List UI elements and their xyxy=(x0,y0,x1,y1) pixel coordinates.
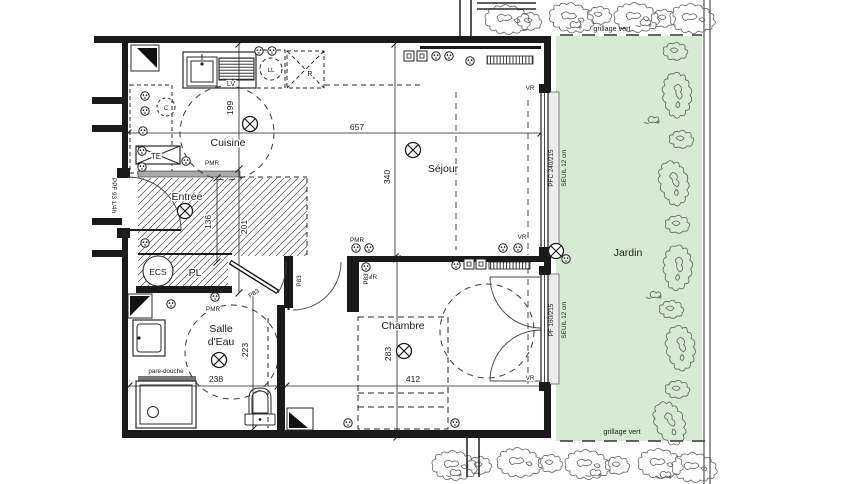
light-bath-icon xyxy=(212,353,227,368)
label-r: R xyxy=(307,69,312,78)
wall-top xyxy=(122,36,550,43)
label-te: TE xyxy=(151,152,161,161)
room-label-deau: d'Eau xyxy=(208,336,235,348)
dim-136: 136 xyxy=(203,215,213,229)
label-vr-mid: VR xyxy=(518,234,527,241)
wall-right-a xyxy=(544,36,551,92)
room-label-salle: Salle xyxy=(209,323,233,335)
label-entry-door: PPF 93 1/4h xyxy=(110,178,117,214)
wall-left-upper xyxy=(122,36,128,168)
label-window-living: PFC 240/215 xyxy=(548,149,555,187)
garden-area xyxy=(556,36,702,441)
shower-screen xyxy=(138,376,196,381)
radiator-bedroom xyxy=(489,262,530,269)
partition-return-stub xyxy=(347,256,359,312)
wall-right-c xyxy=(544,384,551,438)
dim-223: 223 xyxy=(240,343,250,357)
dim-201: 201 xyxy=(239,220,249,234)
label-c: C xyxy=(164,105,169,112)
radiator-living xyxy=(487,56,533,64)
light-garden-icon xyxy=(549,244,564,259)
label-vr-top: VR xyxy=(526,85,535,92)
wall-top-inner-line xyxy=(420,46,541,49)
wall-left-lower xyxy=(122,238,128,438)
fence-label-bottom: grillage vert xyxy=(603,427,640,436)
label-ll: LL xyxy=(267,67,275,74)
room-label-chambre: Chambre xyxy=(381,320,424,332)
label-lv: LV xyxy=(227,79,235,88)
dim-283: 283 xyxy=(383,347,393,361)
room-label-jardin: Jardin xyxy=(614,247,643,259)
label-sill-living: SEUIL 12 cm xyxy=(561,150,568,187)
label-window-bedroom: PF 160/215 xyxy=(548,303,555,336)
entry-threshold xyxy=(138,171,240,177)
label-pmr-kitchen: PMR xyxy=(205,160,219,167)
floor-plan-page: grillage vert grillage vert Jardin Cuisi… xyxy=(0,0,860,484)
dim-199: 199 xyxy=(225,101,235,115)
light-bedroom-icon xyxy=(397,344,412,359)
closet-bottom-wall xyxy=(136,286,232,293)
dim-340: 340 xyxy=(382,170,392,184)
label-ecs: ECS xyxy=(149,267,167,277)
room-label-cuisine: Cuisine xyxy=(210,137,245,149)
light-kitchen-icon xyxy=(243,117,258,132)
bath-bedroom-wall xyxy=(277,305,285,430)
label-pare-douche: pare-douche xyxy=(148,368,184,375)
dishwasher xyxy=(219,58,254,80)
label-p83-hall: P83 xyxy=(363,273,370,285)
room-label-entree: Entrée xyxy=(172,191,203,203)
light-entry-icon xyxy=(178,204,193,219)
label-sill-bedroom: SEUIL 12 cm xyxy=(561,302,568,339)
partition-living-bedroom xyxy=(347,256,544,262)
label-pl: PL xyxy=(189,267,202,279)
floor-plan-drawing: grillage vert grillage vert Jardin Cuisi… xyxy=(0,0,860,484)
label-pmr-bath: PMR xyxy=(206,306,220,313)
wall-bottom xyxy=(122,430,550,438)
dim-238: 238 xyxy=(209,374,223,384)
label-pmr-living: PMR xyxy=(350,237,364,244)
fence-label-top: grillage vert xyxy=(593,24,630,33)
label-p83-bedroom: P83 xyxy=(296,275,303,287)
entry-door-jamb-top xyxy=(117,168,130,178)
dim-412: 412 xyxy=(406,374,420,384)
room-label-sejour: Séjour xyxy=(428,163,459,175)
light-living-icon xyxy=(406,143,421,158)
label-vr-bottom: VR xyxy=(526,375,535,382)
bedroom-radiator-wedge xyxy=(287,408,313,430)
dim-657: 657 xyxy=(350,122,364,132)
